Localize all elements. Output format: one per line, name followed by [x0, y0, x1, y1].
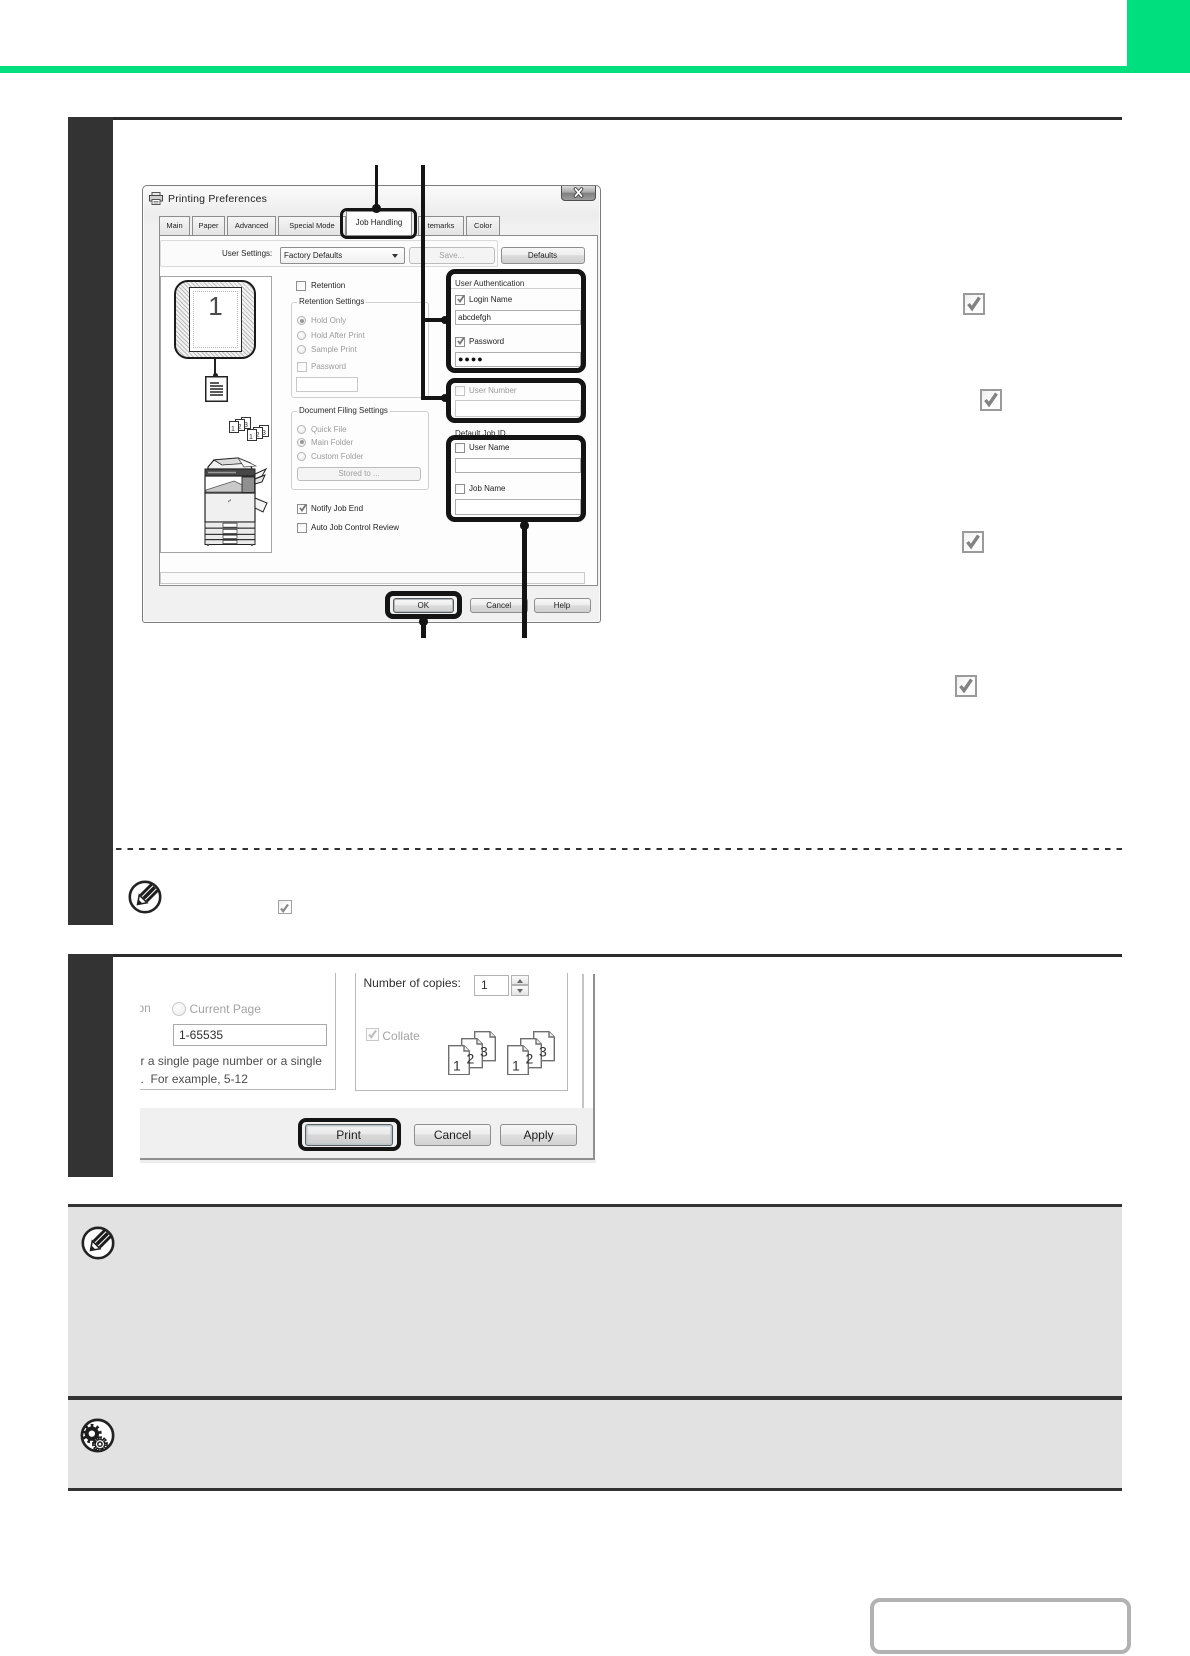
svg-text:2: 2	[256, 432, 260, 439]
svg-text:2: 2	[466, 1051, 474, 1067]
svg-text:1: 1	[512, 1058, 520, 1074]
svg-text:2: 2	[525, 1051, 533, 1067]
svg-text:1: 1	[231, 426, 235, 433]
svg-text:3: 3	[262, 430, 266, 437]
svg-text:2: 2	[238, 424, 242, 431]
svg-text:3: 3	[480, 1044, 488, 1060]
svg-text:3: 3	[539, 1044, 547, 1060]
svg-text:1: 1	[249, 434, 253, 441]
svg-text:3: 3	[244, 422, 248, 429]
svg-text:1: 1	[453, 1058, 461, 1074]
